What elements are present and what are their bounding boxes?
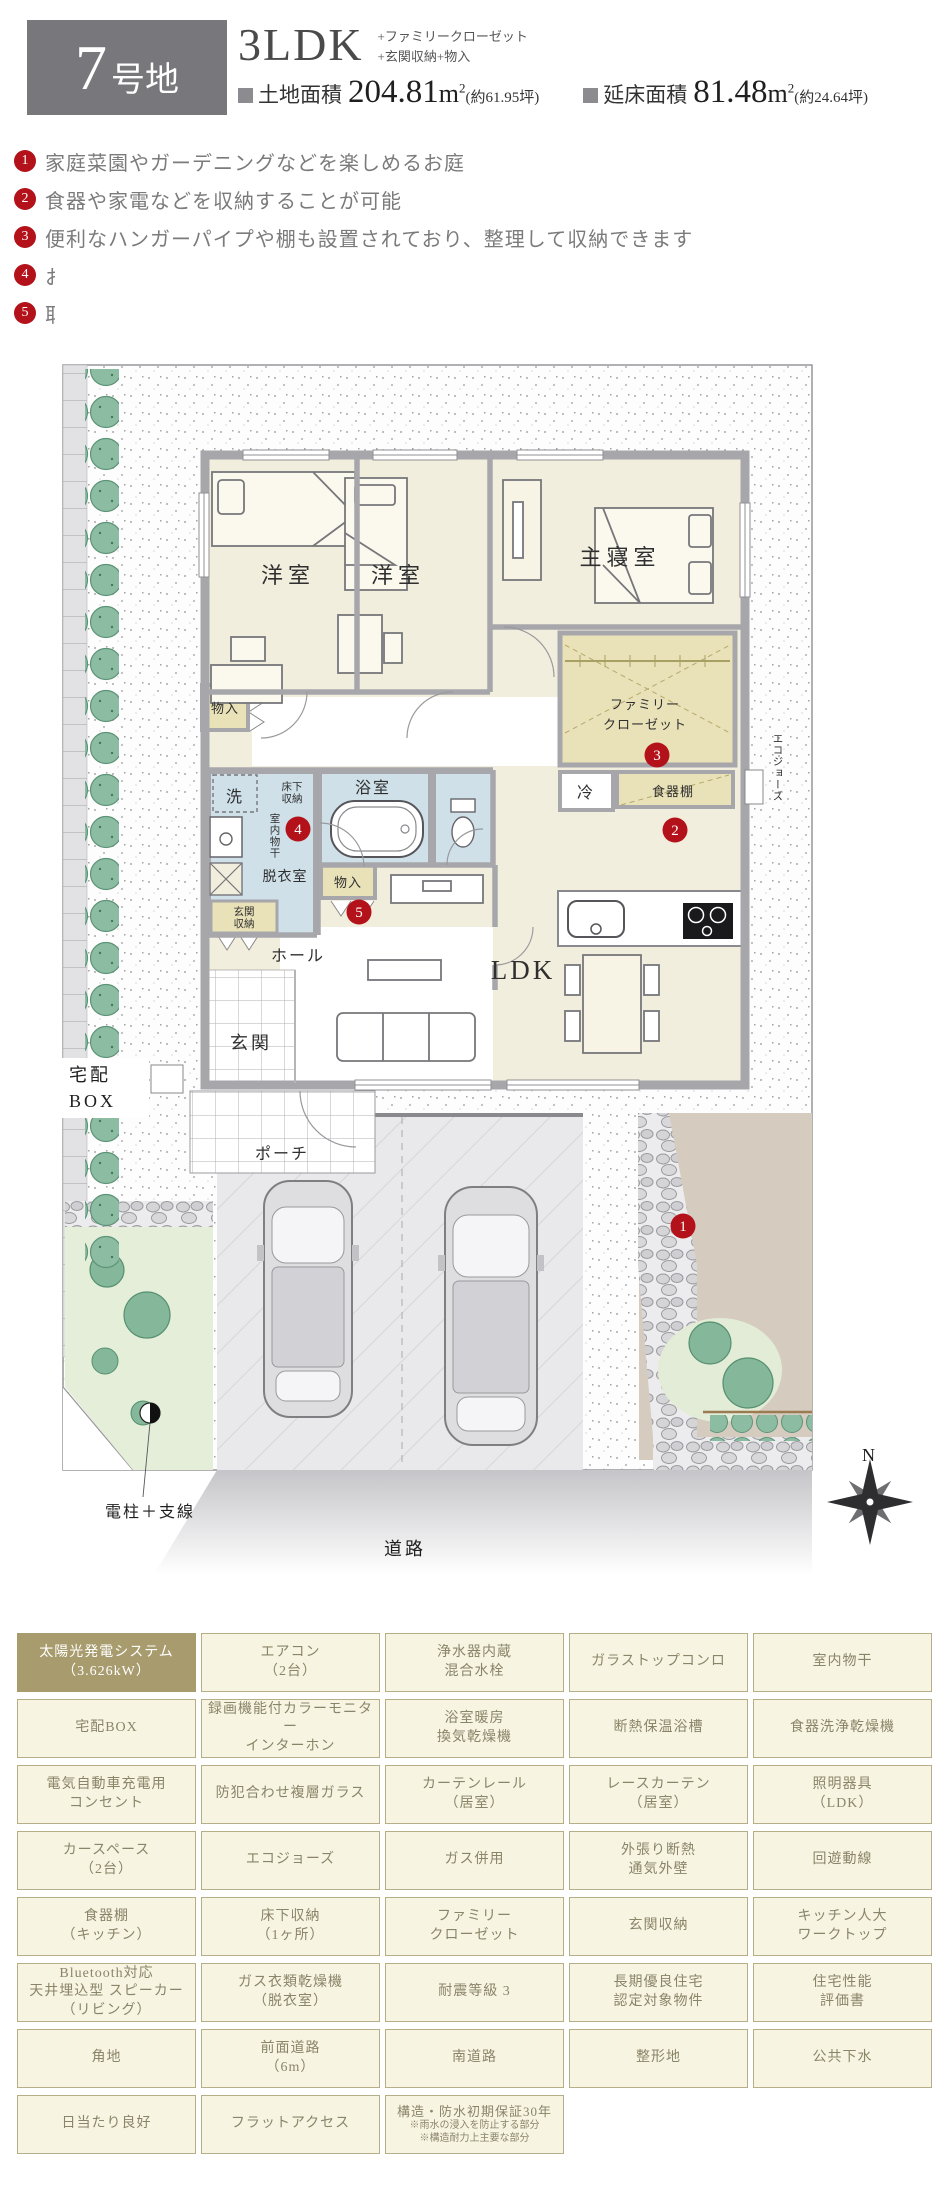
label-fridge: 冷	[577, 784, 595, 802]
feature-cell: 日当たり良好	[17, 2095, 196, 2154]
road	[155, 1470, 812, 1573]
feature-cell: Bluetooth対応天井埋込型 スピーカー（リビング）	[17, 1963, 196, 2022]
list-item: 3便利なハンガーパイプや棚も設置されており、整理して収納できます	[14, 218, 934, 256]
number-badge: 1	[14, 150, 36, 172]
svg-text:収納: 収納	[282, 792, 303, 805]
feature-cell: 角地	[17, 2029, 196, 2088]
page: 7 号地 3LDK +ファミリークローゼット +玄関収納+物入 土地面積204.…	[0, 0, 950, 2185]
feature-cell: キッチン人大ワークトップ	[753, 1897, 932, 1956]
room-label-yoshitsu: 洋室	[371, 563, 425, 588]
label-hall: ホール	[271, 948, 325, 965]
feature-cell: 耐震等級 3	[385, 1963, 564, 2022]
feature-cell: 室内物干	[753, 1633, 932, 1692]
label-north: N	[862, 1445, 878, 1465]
floor-area: 延床面積81.48m2(約24.64坪)	[583, 74, 868, 111]
label-utility-pole: 電柱＋支線	[105, 1503, 195, 1521]
feature-cell: 床下収納（1ヶ所）	[201, 1897, 380, 1956]
delivery-box	[151, 1065, 183, 1093]
feature-cell: 照明器具（LDK）	[753, 1765, 932, 1824]
room-label-master: 主寝室	[579, 545, 660, 570]
label-ldk: LDK	[491, 955, 556, 985]
label-eco-jozu: エコジョーズ	[772, 733, 783, 802]
plan-info: 3LDK +ファミリークローゼット +玄関収納+物入 土地面積204.81m2(…	[238, 22, 938, 111]
marker-4: 4	[286, 817, 311, 842]
car	[438, 1187, 544, 1445]
lot-suffix: 号地	[111, 34, 179, 101]
feature-cell: 前面道路（6m）	[201, 2029, 380, 2088]
water-heater	[745, 770, 763, 804]
label-dish-shelf: 食器棚	[652, 784, 694, 799]
list-item: 2食器や家電などを収納することが可能	[14, 180, 934, 218]
feature-cell: ファミリークローゼット	[385, 1897, 564, 1956]
marker-3: 3	[645, 743, 670, 768]
label-entrance: 玄関	[230, 1033, 272, 1053]
label-bathroom: 浴室	[355, 779, 391, 797]
feature-cell: 電気自動車充電用コンセント	[17, 1765, 196, 1824]
square-bullet-icon	[583, 88, 598, 103]
floor-plan: 洋室 洋室 主寝室 ファミリー クローゼット 冷 食器棚 エコジョーズ 物入 洗…	[55, 265, 945, 1580]
entrance-tiles	[208, 970, 295, 1083]
feature-cell: 長期優良住宅認定対象物件	[569, 1963, 748, 2022]
feature-cell: 浴室暖房換気乾燥機	[385, 1699, 564, 1758]
feature-cell: ガス衣類乾燥機（脱衣室）	[201, 1963, 380, 2022]
feature-cell: 食器棚（キッチン）	[17, 1897, 196, 1956]
feature-cell: 玄関収納	[569, 1897, 748, 1956]
kitchen	[558, 891, 745, 946]
label-storage-lower: 物入	[334, 875, 362, 890]
feature-cell: ガス併用	[385, 1831, 564, 1890]
label-laundry: 洗	[226, 788, 244, 806]
features-table: 太陽光発電システム（3.626kW） エアコン（2台） 浄水器内蔵混合水栓 ガラ…	[17, 1633, 932, 2154]
feature-cell: エコジョーズ	[201, 1831, 380, 1890]
plan-extra-2: +玄関収納+物入	[378, 47, 528, 67]
floor-plan-svg: 洋室 洋室 主寝室 ファミリー クローゼット 冷 食器棚 エコジョーズ 物入 洗…	[55, 265, 945, 1580]
corridor	[252, 697, 558, 766]
svg-text:BOX: BOX	[69, 1091, 116, 1111]
feature-cell: レースカーテン（居室）	[569, 1765, 748, 1824]
room-label-yoshitsu: 洋室	[261, 563, 315, 588]
label-underfloor: 床下	[282, 780, 303, 793]
feature-cell: 外張り断熱通気外壁	[569, 1831, 748, 1890]
lot-badge: 7 号地	[27, 20, 227, 115]
svg-text:1: 1	[679, 1219, 687, 1235]
svg-text:4: 4	[294, 822, 302, 838]
number-badge: 2	[14, 188, 36, 210]
feature-cell: カースペース（2台）	[17, 1831, 196, 1890]
feature-cell: 回遊動線	[753, 1831, 932, 1890]
marker-5: 5	[347, 900, 372, 925]
plan-extras: +ファミリークローゼット +玄関収納+物入	[378, 22, 528, 66]
feature-cell: 宅配BOX	[17, 1699, 196, 1758]
svg-text:3: 3	[653, 748, 661, 764]
feature-cell-warranty: 構造・防水初期保証30年※雨水の浸入を防止する部分※構造耐力上主要な部分	[385, 2095, 564, 2154]
label-dressing-room: 脱衣室	[263, 868, 308, 885]
label-road: 道路	[384, 1539, 426, 1559]
car	[257, 1181, 359, 1417]
feature-cell: 整形地	[569, 2029, 748, 2088]
feature-cell: 録画機能付カラーモニターインターホン	[201, 1699, 380, 1758]
square-bullet-icon	[238, 88, 253, 103]
feature-cell: 太陽光発電システム（3.626kW）	[17, 1633, 196, 1692]
marker-2: 2	[663, 818, 688, 843]
land-area: 土地面積204.81m2(約61.95坪)	[238, 74, 539, 111]
label-porch: ポーチ	[255, 1145, 309, 1163]
feature-cell: 断熱保温浴槽	[569, 1699, 748, 1758]
feature-cell: 防犯合わせ複層ガラス	[201, 1765, 380, 1824]
garden	[638, 1113, 812, 1470]
svg-text:2: 2	[671, 823, 679, 839]
hedge-row	[85, 369, 119, 1269]
label-delivery-box: 宅配	[69, 1065, 111, 1085]
number-badge: 4	[14, 264, 36, 286]
plan-extra-1: +ファミリークローゼット	[378, 27, 528, 47]
number-badge: 5	[14, 302, 36, 324]
feature-cell: 食器洗浄乾燥機	[753, 1699, 932, 1758]
feature-cell: 南道路	[385, 2029, 564, 2088]
plan-type: 3LDK	[238, 22, 364, 68]
list-item: 1家庭菜園やガーデニングなどを楽しめるお庭	[14, 142, 934, 180]
feature-cell: 住宅性能評価書	[753, 1963, 932, 2022]
svg-text:クローゼット: クローゼット	[603, 717, 687, 732]
svg-text:5: 5	[355, 905, 363, 921]
label-storage-upper: 物入	[211, 701, 239, 716]
svg-text:収納: 収納	[234, 917, 255, 930]
label-indoor-drying: 室内物干	[269, 812, 280, 859]
feature-cell: エアコン（2台）	[201, 1633, 380, 1692]
feature-cell: カーテンレール（居室）	[385, 1765, 564, 1824]
number-badge: 3	[14, 226, 36, 248]
feature-cell: フラットアクセス	[201, 2095, 380, 2154]
label-entrance-storage: 玄関	[234, 905, 255, 918]
marker-1: 1	[671, 1214, 696, 1239]
feature-cell: 公共下水	[753, 2029, 932, 2088]
room-label-family-closet: ファミリー	[610, 697, 680, 712]
feature-cell: ガラストップコンロ	[569, 1633, 748, 1692]
lot-number: 7	[75, 36, 107, 100]
feature-cell: 浄水器内蔵混合水栓	[385, 1633, 564, 1692]
